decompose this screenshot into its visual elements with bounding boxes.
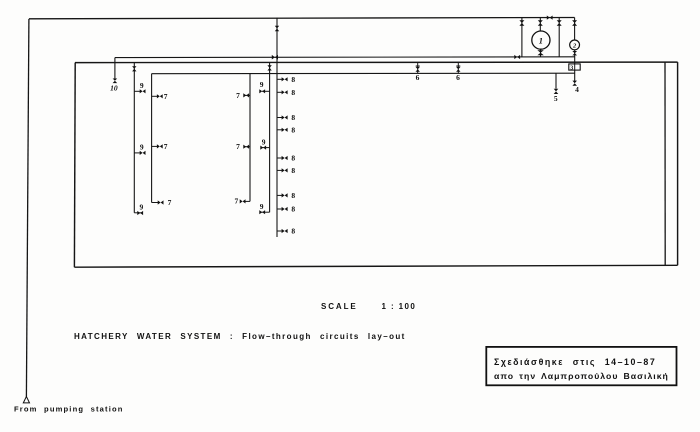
svg-text:3: 3 xyxy=(570,65,573,71)
svg-text:9: 9 xyxy=(262,138,266,147)
svg-text:10: 10 xyxy=(110,84,118,93)
svg-text:9: 9 xyxy=(260,80,264,89)
svg-text:Σχεδιάσθηκε στις 14–10–87: Σχεδιάσθηκε στις 14–10–87 xyxy=(494,357,656,367)
svg-text:7: 7 xyxy=(164,142,168,151)
svg-text:7: 7 xyxy=(236,142,240,151)
svg-text:SCALE: SCALE xyxy=(321,302,358,311)
svg-text:9: 9 xyxy=(260,202,264,211)
svg-text:8: 8 xyxy=(291,88,295,97)
svg-text:From pumping station: From pumping station xyxy=(14,404,124,413)
svg-text:8: 8 xyxy=(291,205,295,214)
svg-text:7: 7 xyxy=(236,91,240,100)
svg-text:7: 7 xyxy=(164,92,168,101)
svg-text:8: 8 xyxy=(291,166,295,175)
svg-text:6: 6 xyxy=(456,73,460,82)
svg-text:8: 8 xyxy=(291,125,295,134)
svg-text:8: 8 xyxy=(291,227,295,236)
svg-text:4: 4 xyxy=(575,85,579,94)
svg-text:2: 2 xyxy=(572,42,577,49)
svg-text:HATCHERY WATER SYSTEM : Flow–t: HATCHERY WATER SYSTEM : Flow–through cir… xyxy=(74,332,406,341)
svg-text:1: 1 xyxy=(539,35,543,45)
svg-text:9: 9 xyxy=(140,143,144,152)
svg-text:6: 6 xyxy=(416,73,420,82)
svg-text:9: 9 xyxy=(140,203,144,212)
svg-text:7: 7 xyxy=(235,197,239,206)
svg-text:απο την Λαμπροπούλου Βασιλική: απο την Λαμπροπούλου Βασιλική xyxy=(494,371,669,381)
svg-text:8: 8 xyxy=(291,154,295,163)
svg-text:8: 8 xyxy=(291,113,295,122)
svg-text:5: 5 xyxy=(554,94,558,103)
svg-text:8: 8 xyxy=(291,191,295,200)
svg-text:1 : 100: 1 : 100 xyxy=(382,302,417,311)
svg-text:9: 9 xyxy=(140,81,144,90)
svg-text:8: 8 xyxy=(291,75,295,84)
svg-text:7: 7 xyxy=(168,198,172,207)
